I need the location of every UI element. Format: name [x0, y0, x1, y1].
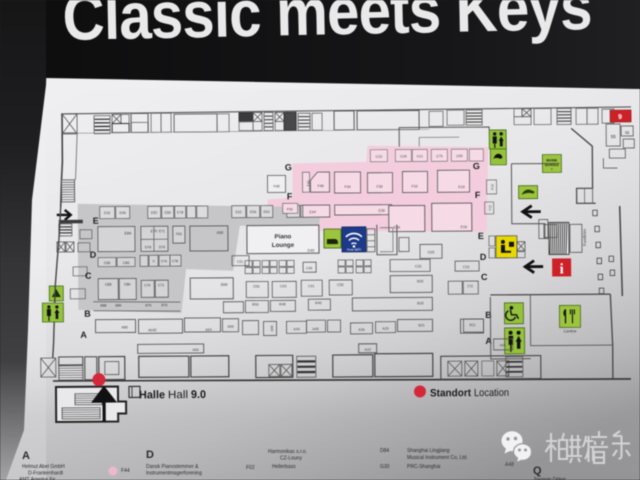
svg-text:i: i	[559, 261, 563, 277]
svg-text:Lounge: Lounge	[272, 242, 295, 249]
svg-text:A: A	[22, 450, 30, 462]
svg-text:C86: C86	[124, 282, 131, 286]
svg-text:B: B	[485, 310, 492, 320]
svg-text:G33: G33	[375, 155, 382, 159]
svg-text:G20: G20	[428, 250, 435, 254]
svg-text:C41: C41	[308, 284, 315, 288]
svg-text:F48: F48	[317, 184, 323, 188]
svg-text:A88: A88	[216, 231, 223, 235]
svg-text:C71: C71	[158, 283, 164, 287]
svg-text:A48: A48	[505, 462, 514, 468]
svg-text:E62: E62	[236, 210, 242, 214]
svg-text:Standort: Standort	[430, 387, 472, 399]
svg-text:PRC-Shanghai: PRC-Shanghai	[407, 464, 440, 470]
svg-text:A40: A40	[312, 327, 318, 331]
svg-text:9: 9	[618, 114, 622, 121]
svg-text:F10: F10	[411, 184, 417, 188]
svg-text:E84: E84	[124, 231, 131, 235]
svg-text:D40: D40	[308, 249, 315, 253]
svg-text:E: E	[478, 231, 484, 241]
svg-text:D: D	[146, 449, 154, 461]
svg-text:C7A: C7A	[161, 259, 168, 263]
svg-text:C20: C20	[415, 264, 422, 268]
svg-text:E18: E18	[461, 225, 467, 229]
svg-text:A64: A64	[205, 328, 211, 332]
svg-text:D78: D78	[145, 245, 151, 249]
svg-text:C01: C01	[237, 260, 244, 264]
svg-text:B88: B88	[100, 304, 106, 308]
svg-text:E71: E71	[159, 229, 165, 233]
svg-text:G06: G06	[456, 154, 463, 158]
svg-text:C90: C90	[104, 261, 111, 265]
svg-text:C11: C11	[467, 284, 473, 288]
svg-text:C10: C10	[463, 265, 470, 269]
svg-text:A05: A05	[500, 343, 506, 347]
svg-text:A80: A80	[121, 325, 127, 329]
svg-text:C43: C43	[280, 284, 287, 288]
svg-text:E90: E90	[120, 211, 126, 215]
svg-text:55: 55	[611, 134, 617, 139]
svg-text:A44: A44	[293, 327, 299, 331]
svg-text:E10: E10	[458, 185, 464, 189]
svg-text:E30: E30	[379, 209, 385, 213]
svg-text:G11: G11	[417, 154, 424, 158]
svg-text:Hall: Hall	[168, 389, 188, 401]
svg-text:C40: C40	[306, 266, 312, 270]
svg-text:E80: E80	[165, 211, 171, 215]
svg-text:Piano: Piano	[274, 233, 291, 240]
svg-text:A: A	[485, 336, 492, 346]
svg-text:E: E	[93, 216, 99, 226]
svg-text:B21: B21	[418, 323, 424, 327]
svg-text:Halle: Halle	[139, 389, 165, 401]
svg-text:F: F	[475, 190, 481, 200]
svg-text:Free WiFi: Free WiFi	[347, 248, 361, 252]
svg-text:C76: C76	[144, 283, 150, 287]
svg-text:C: C	[85, 271, 92, 281]
svg-text:E82: E82	[151, 211, 157, 215]
svg-text:Musical Instrument Co, Ltd.: Musical Instrument Co, Ltd.	[407, 455, 468, 461]
svg-text:CZ-Louny: CZ-Louny	[280, 456, 302, 462]
svg-text:9.0: 9.0	[191, 389, 206, 401]
svg-text:Shanghai Lingjiang: Shanghai Lingjiang	[407, 448, 450, 454]
svg-text:D: D	[480, 252, 487, 262]
svg-text:B48: B48	[279, 302, 285, 306]
svg-text:C30: C30	[337, 283, 344, 287]
svg-text:F: F	[287, 191, 293, 201]
svg-text:G28: G28	[400, 155, 407, 159]
svg-text:Location: Location	[474, 387, 509, 399]
svg-text:F44: F44	[121, 468, 130, 474]
svg-text:F02: F02	[246, 465, 255, 471]
svg-text:E52: E52	[264, 210, 270, 214]
svg-text:B66: B66	[221, 283, 228, 287]
svg-text:F42: F42	[307, 180, 311, 186]
svg-text:G7b: G7b	[436, 154, 443, 158]
svg-text:A60: A60	[227, 325, 233, 329]
svg-text:Instrumentmagerforening: Instrumentmagerforening	[146, 471, 202, 477]
svg-text:E92: E92	[104, 211, 110, 215]
svg-text:D84: D84	[380, 448, 389, 454]
svg-text:♬: ♬	[550, 167, 553, 171]
svg-text:D-Frankenhardt: D-Frankenhardt	[28, 471, 64, 477]
svg-text:Cantine: Cantine	[564, 329, 577, 333]
svg-text:E78: E78	[177, 211, 183, 215]
svg-text:A36: A36	[358, 328, 364, 332]
svg-text:E56: E56	[250, 210, 256, 214]
svg-text:D: D	[90, 250, 97, 260]
svg-text:Harmonikas s.r.o.: Harmonikas s.r.o.	[268, 449, 307, 455]
svg-text:Y02: Y02	[488, 205, 492, 211]
svg-text:5: 5	[153, 259, 155, 263]
svg-text:F02: F02	[491, 184, 495, 190]
svg-text:E44: E44	[310, 210, 316, 214]
svg-text:B50: B50	[252, 303, 258, 307]
svg-text:Q: Q	[533, 465, 542, 477]
svg-text:B20: B20	[417, 301, 423, 305]
svg-text:G: G	[473, 161, 480, 171]
svg-text:B70: B70	[161, 303, 167, 307]
svg-text:C80: C80	[123, 261, 130, 265]
svg-text:A: A	[80, 330, 87, 340]
svg-text:B11: B11	[469, 323, 475, 327]
svg-text:F34: F34	[344, 185, 350, 189]
svg-text:Hellerbass: Hellerbass	[272, 464, 296, 470]
svg-text:F30: F30	[376, 185, 382, 189]
svg-text:G: G	[285, 162, 292, 172]
svg-text:Fundbüro: Fundbüro	[582, 228, 587, 246]
svg-text:F03: F03	[176, 232, 182, 236]
svg-text:F40: F40	[273, 184, 279, 188]
svg-text:D76: D76	[159, 245, 165, 249]
svg-text:C88: C88	[105, 283, 112, 287]
svg-text:Helmut Abel GmbH: Helmut Abel GmbH	[22, 464, 65, 470]
svg-text:A66: A66	[192, 348, 198, 352]
svg-text:B20: B20	[417, 279, 423, 283]
svg-text:G30: G30	[380, 464, 390, 470]
svg-text:MUSIK: MUSIK	[546, 158, 558, 162]
svg-text:C7B: C7B	[172, 259, 178, 263]
svg-text:F50: F50	[287, 207, 293, 211]
svg-text:B86: B86	[115, 304, 121, 308]
svg-text:A33: A33	[364, 348, 370, 352]
svg-text:C50: C50	[253, 285, 260, 289]
svg-text:B76: B76	[145, 303, 151, 307]
svg-text:A64E: A64E	[148, 328, 157, 332]
svg-text:B40: B40	[315, 301, 321, 305]
svg-text:C: C	[481, 272, 488, 282]
svg-text:B: B	[84, 309, 91, 319]
svg-text:A26: A26	[382, 327, 388, 331]
svg-text:A68: A68	[270, 325, 274, 331]
svg-text:Dansk Pianostemmer &: Dansk Pianostemmer &	[146, 464, 199, 470]
